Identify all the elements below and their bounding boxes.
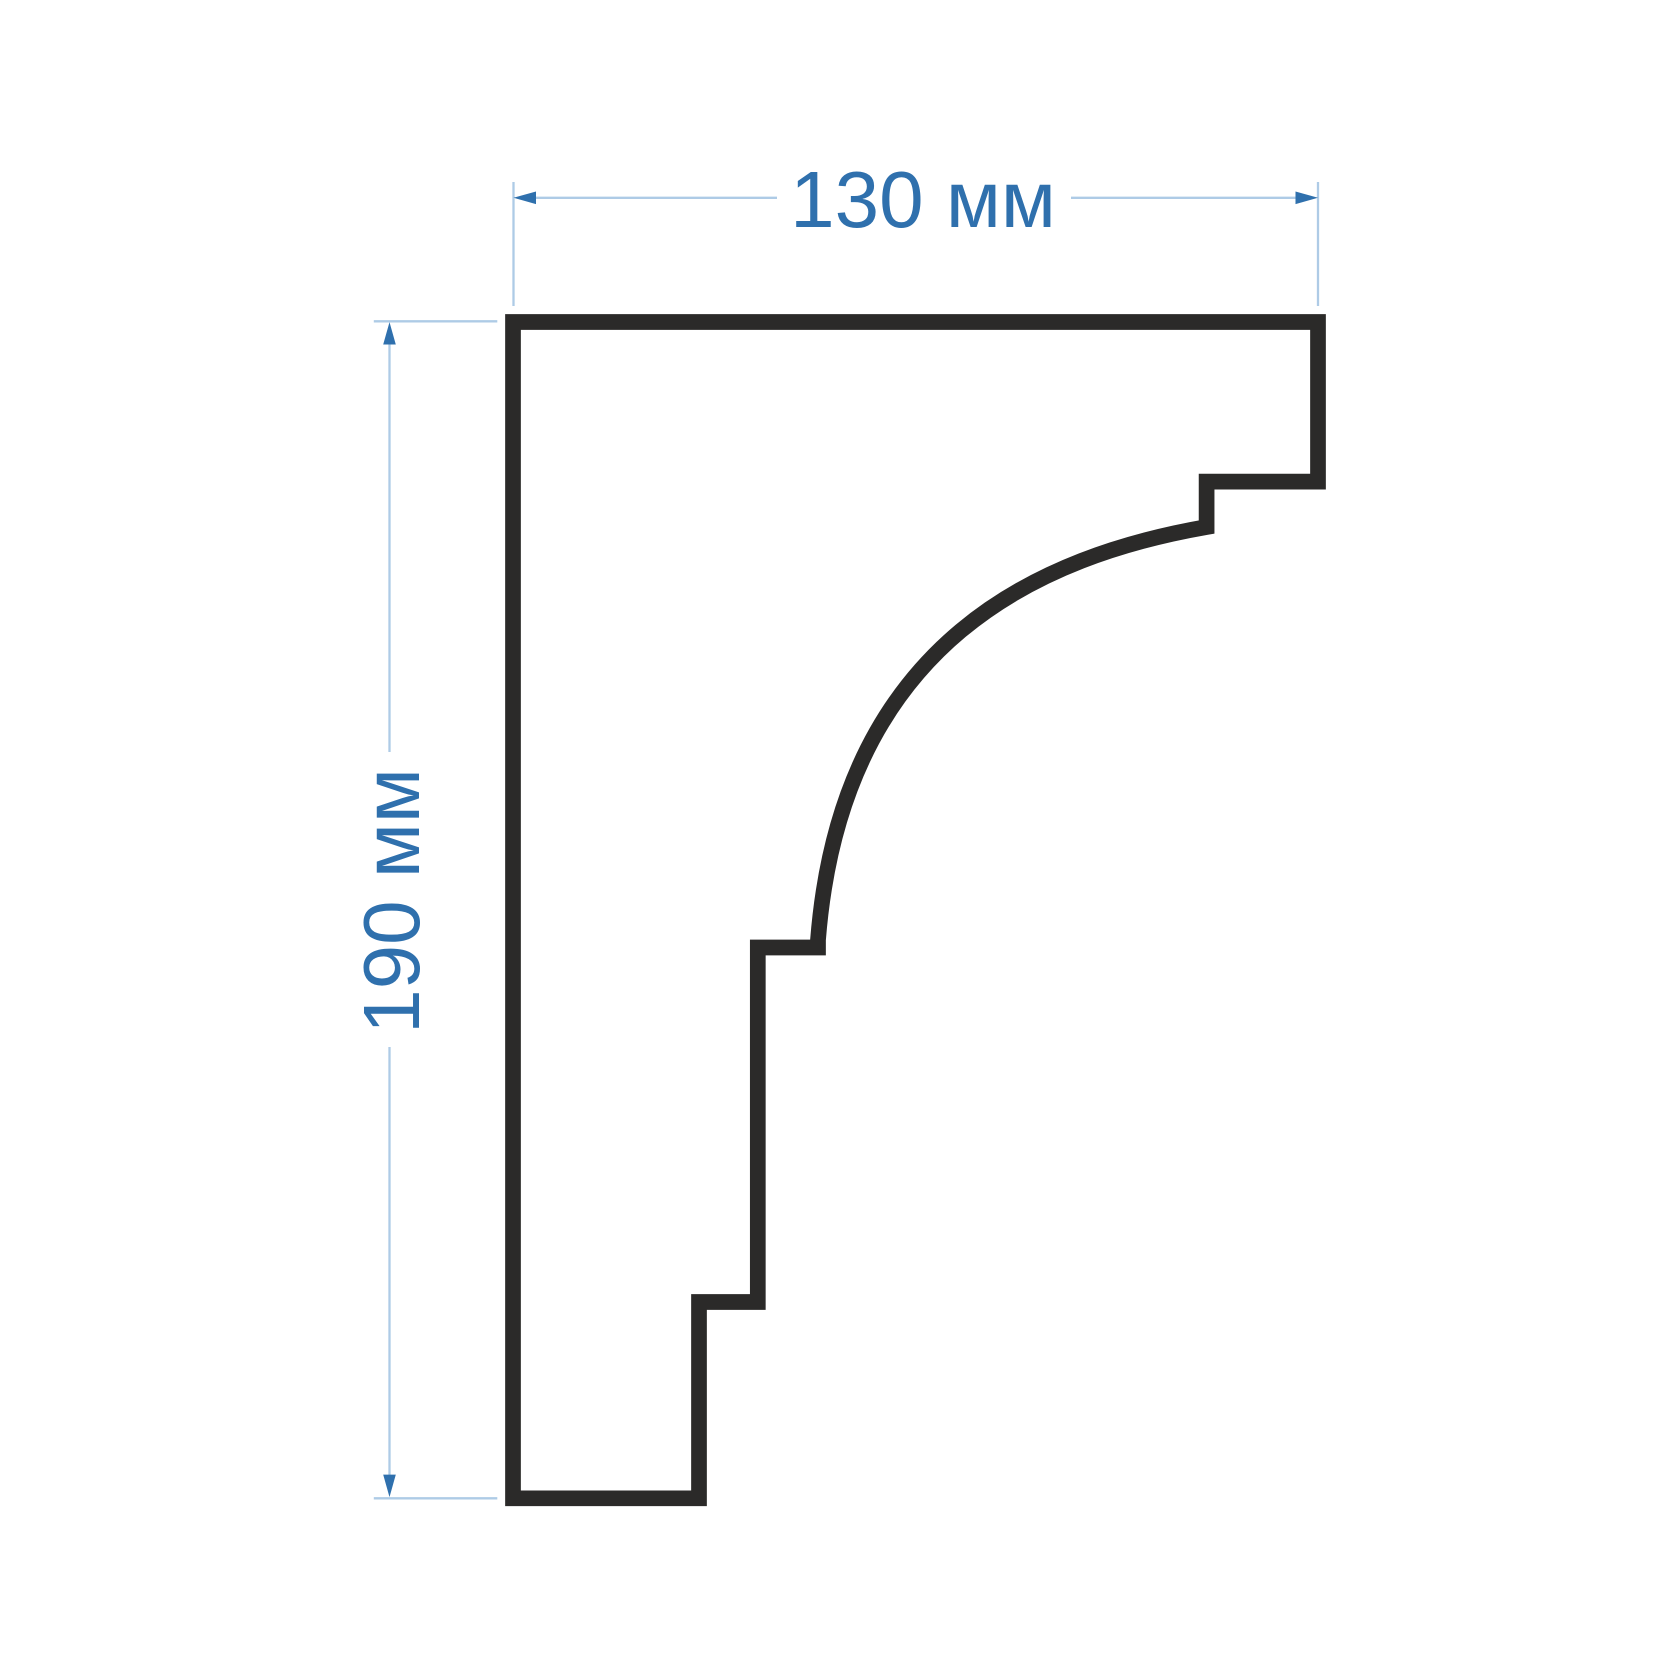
svg-text:190 мм: 190 мм [347, 768, 436, 1034]
svg-text:130 мм: 130 мм [790, 155, 1056, 244]
